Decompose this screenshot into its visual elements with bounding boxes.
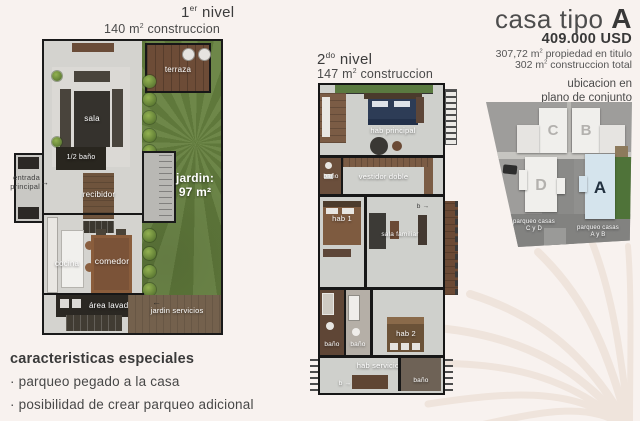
hedge-bush-icon xyxy=(143,129,156,142)
bano-mid-label: baño xyxy=(344,341,372,348)
sideboard xyxy=(72,43,114,52)
bed-runner xyxy=(368,119,418,125)
site-green-patch xyxy=(615,157,632,219)
site-house-a-letter: A xyxy=(585,178,615,198)
site-house-c-letter: C xyxy=(539,122,567,139)
sala-sofa xyxy=(60,89,71,147)
headboard xyxy=(387,317,424,324)
site-house-a-wing xyxy=(579,176,587,192)
features-title: caracteristicas especiales xyxy=(10,351,194,367)
desk xyxy=(323,249,351,257)
headboard xyxy=(323,201,361,207)
site-house-b-letter: B xyxy=(572,122,600,139)
hatch-edge xyxy=(445,359,453,391)
level2-title: 2do nivel xyxy=(317,51,372,68)
comedor-label: comedor xyxy=(86,257,138,267)
sala-sofa xyxy=(74,71,110,82)
parking-cd-label: parqueo casas C y D xyxy=(510,219,558,233)
wardrobe-strip xyxy=(424,167,433,194)
bano-servicio-room xyxy=(401,358,441,391)
pillow-icon xyxy=(401,343,409,350)
planter-box xyxy=(18,207,39,219)
dresser xyxy=(416,97,424,123)
feature-item: · parqueo pegado a la casa xyxy=(10,374,180,389)
level2-title-number: 2 xyxy=(317,51,326,68)
site-house-d-letter: D xyxy=(525,177,557,195)
half-bath-label: 1/2 baño xyxy=(67,154,96,162)
bed-principal xyxy=(368,99,418,125)
hedge-bush-icon xyxy=(143,75,156,88)
site-house-b: B xyxy=(572,108,600,153)
price: 409.000 USD xyxy=(400,31,632,47)
hab1-label: hab 1 xyxy=(320,215,364,224)
hedge-bush-icon xyxy=(143,229,156,242)
shower-icon xyxy=(322,293,334,315)
level1-area-rest: construccion xyxy=(144,22,220,36)
stair-direction-label: b → xyxy=(408,203,438,210)
jardin-label: jardin: 97 m² xyxy=(172,172,218,200)
sala-table: sala xyxy=(74,91,110,147)
jardin-label-line2: 97 m² xyxy=(172,186,218,200)
level1-area-value: 140 m xyxy=(104,22,140,36)
level2-title-ordinal: do xyxy=(326,51,336,60)
level1-title: 1er nivel xyxy=(181,4,234,21)
site-house-d-wing xyxy=(519,170,527,190)
car-icon xyxy=(503,164,518,174)
spec2-value: 302 m xyxy=(515,59,544,71)
spec-line-2: 302 m2 construccion total xyxy=(400,59,632,71)
hatch-edge xyxy=(310,359,318,391)
planter-box xyxy=(18,157,39,169)
hab2-label: hab 2 xyxy=(382,330,430,339)
page-title-bold: A xyxy=(611,3,632,34)
entrada-arrow-icon: → xyxy=(40,177,49,187)
dining-chair xyxy=(96,229,106,235)
half-bath: 1/2 baño xyxy=(56,147,106,170)
page-title-regular: casa tipo xyxy=(495,4,604,34)
sala-sofa xyxy=(112,89,123,147)
parking-ab-label: parqueo casas A y B xyxy=(574,225,622,239)
level1-floorplan: terraza sala jardin: 97 m² xyxy=(42,39,223,335)
terraza-label: terraza xyxy=(147,65,209,74)
parking-ab-line2: A y B xyxy=(574,232,622,239)
terraza-chair-icon xyxy=(182,48,195,61)
sala-familiar-label: sala familiar xyxy=(370,231,430,238)
toilet-icon xyxy=(352,328,360,336)
jardin-servicios-label: jardin servicios xyxy=(136,307,218,316)
terraza-chair-icon xyxy=(198,48,211,61)
pillow-icon xyxy=(372,101,388,107)
terrace-wood xyxy=(444,201,458,295)
tv-console xyxy=(418,215,427,245)
level2-title-word: nivel xyxy=(335,51,372,68)
plant-icon xyxy=(52,137,62,147)
tub-icon xyxy=(348,295,360,321)
plant-icon xyxy=(52,71,62,81)
dining-chair xyxy=(116,229,126,235)
level1-title-word: nivel xyxy=(198,4,235,21)
site-house-a: A xyxy=(585,154,615,219)
kitchen-counter xyxy=(47,217,58,293)
hedge-bush-icon xyxy=(143,93,156,106)
sala-label: sala xyxy=(84,114,99,123)
site-caption-line1: ubicacion en xyxy=(452,77,632,91)
pillow-icon xyxy=(412,343,420,350)
site-road xyxy=(567,102,571,152)
deck-stairs xyxy=(159,155,172,219)
round-chair xyxy=(370,137,388,155)
toilet-icon xyxy=(326,322,334,330)
vestidor-label: vestidor doble xyxy=(346,173,421,182)
hab-principal-label: hab principal xyxy=(353,127,433,136)
site-plan: C B D A parqueo casas C y D parqueo casa… xyxy=(486,102,632,247)
wall xyxy=(364,197,367,289)
hedge-bush-icon xyxy=(143,265,156,278)
parking-cd-line2: C y D xyxy=(510,226,558,233)
site-house-c-wing xyxy=(517,125,539,153)
washer-icon xyxy=(60,299,69,308)
wardrobe-strip xyxy=(343,158,433,167)
stair-direction-label: b → xyxy=(330,380,360,387)
bano-left-label: baño xyxy=(318,341,346,348)
level1-title-ordinal: er xyxy=(190,4,198,13)
hedge-bush-icon xyxy=(143,111,156,124)
entrada-label: entrada principal xyxy=(4,174,40,191)
level2-body: hab principal baño vestidor doble hab 1 xyxy=(318,83,445,395)
hedge-bush-icon xyxy=(143,247,156,260)
site-house-c: C xyxy=(539,108,567,153)
site-dirt-patch xyxy=(615,146,628,157)
pillow-icon xyxy=(394,101,410,107)
level1-area: 140 m2 construccion xyxy=(104,22,220,36)
toilet-icon xyxy=(325,162,332,169)
garden-deck xyxy=(142,151,176,223)
level2-area-value: 147 m xyxy=(317,67,353,81)
brochure-page: 1er nivel 140 m2 construccion terraza sa… xyxy=(0,0,640,421)
jardin-label-line1: jardin: xyxy=(172,172,218,186)
recibidor-label: recibidor xyxy=(69,190,129,199)
pillow-icon xyxy=(390,343,398,350)
side-table xyxy=(392,141,402,151)
entrada-label-line2: principal xyxy=(4,183,40,192)
site-house-d-wing xyxy=(557,178,565,194)
wardrobe xyxy=(322,97,330,137)
wall xyxy=(44,213,142,215)
wall xyxy=(320,194,443,197)
spec2-rest: construccion total xyxy=(547,59,632,71)
level1-title-number: 1 xyxy=(181,4,190,21)
feature-item: · posibilidad de crear parqueo adicional xyxy=(10,397,254,412)
site-caption: ubicacion en plano de conjunto xyxy=(452,77,632,106)
level2-floorplan: hab principal baño vestidor doble hab 1 xyxy=(318,83,458,395)
cocina-label: cocina xyxy=(47,259,87,268)
site-house-d: D xyxy=(525,157,557,212)
stairs xyxy=(66,315,122,331)
bano-servicio-label: baño xyxy=(402,377,440,384)
